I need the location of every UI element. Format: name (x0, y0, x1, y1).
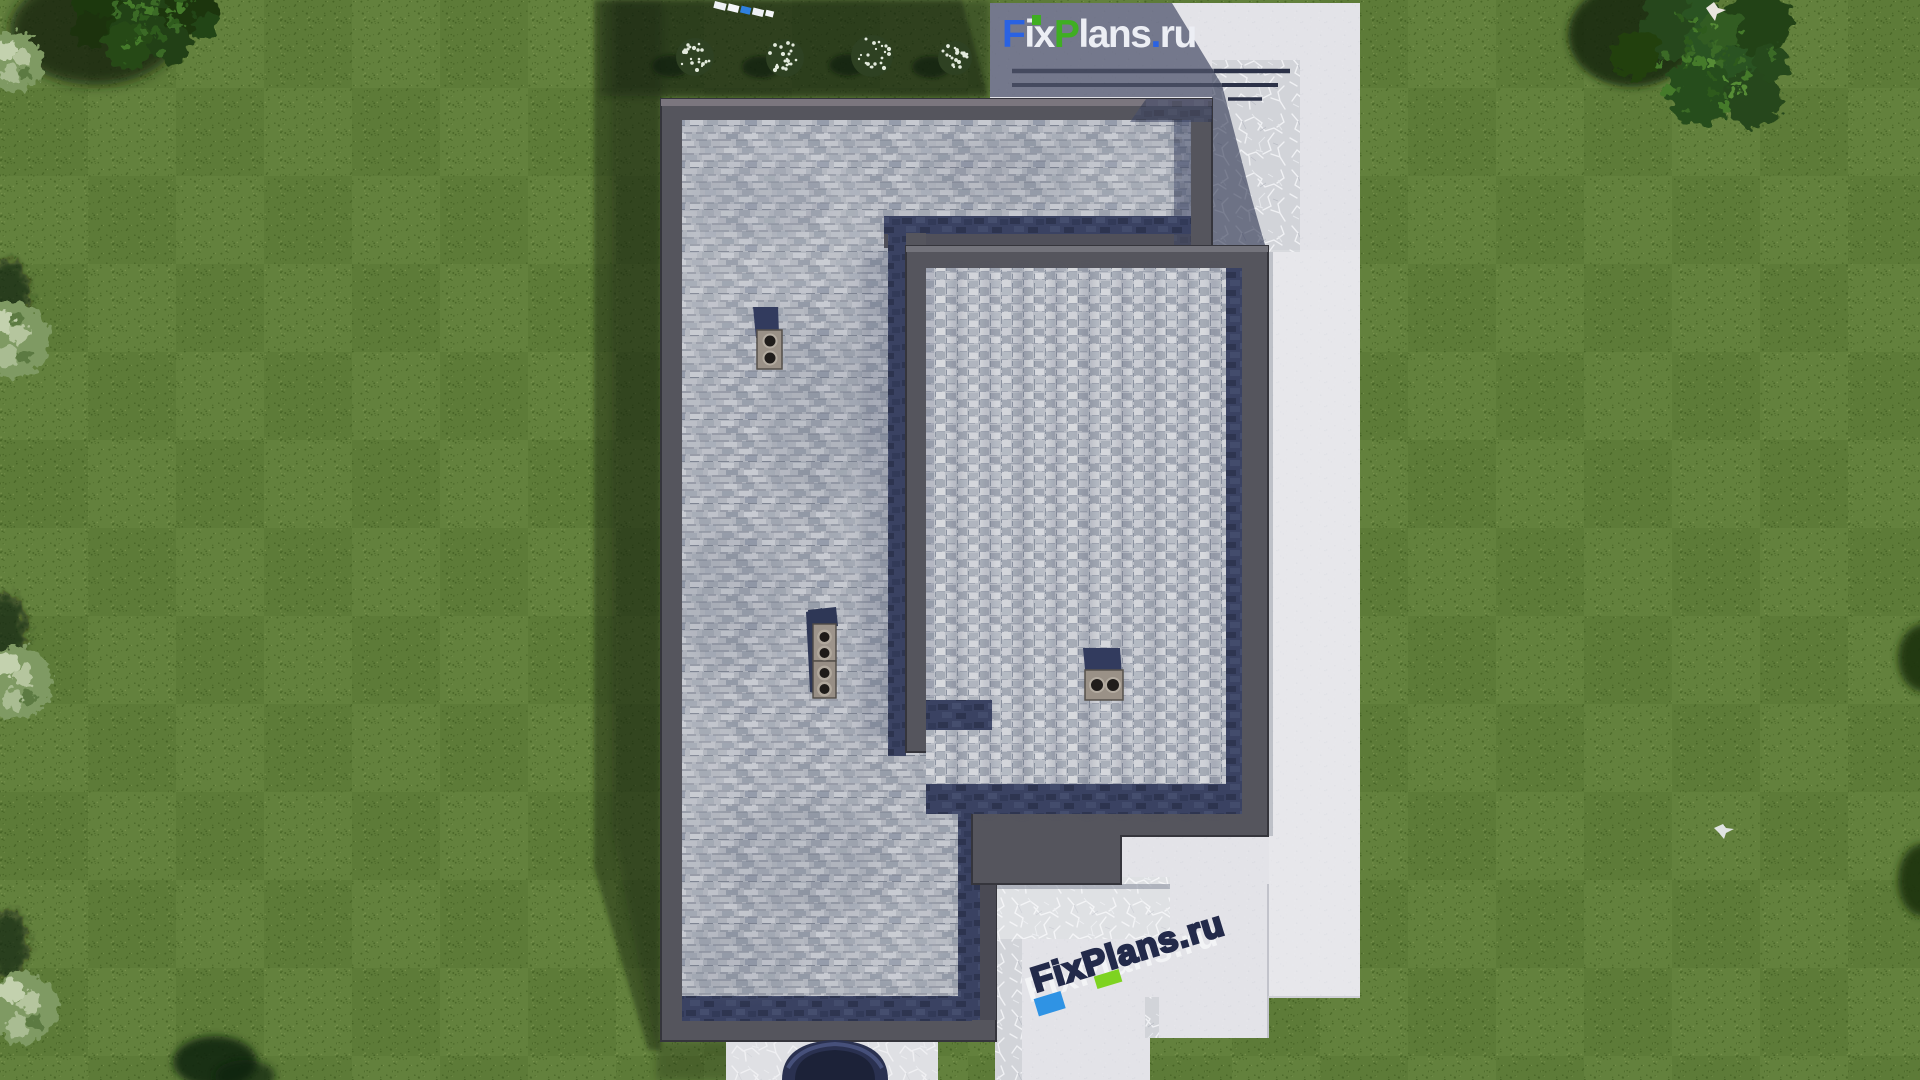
svg-text:FixPlans.ru: FixPlans.ru (1002, 13, 1196, 56)
